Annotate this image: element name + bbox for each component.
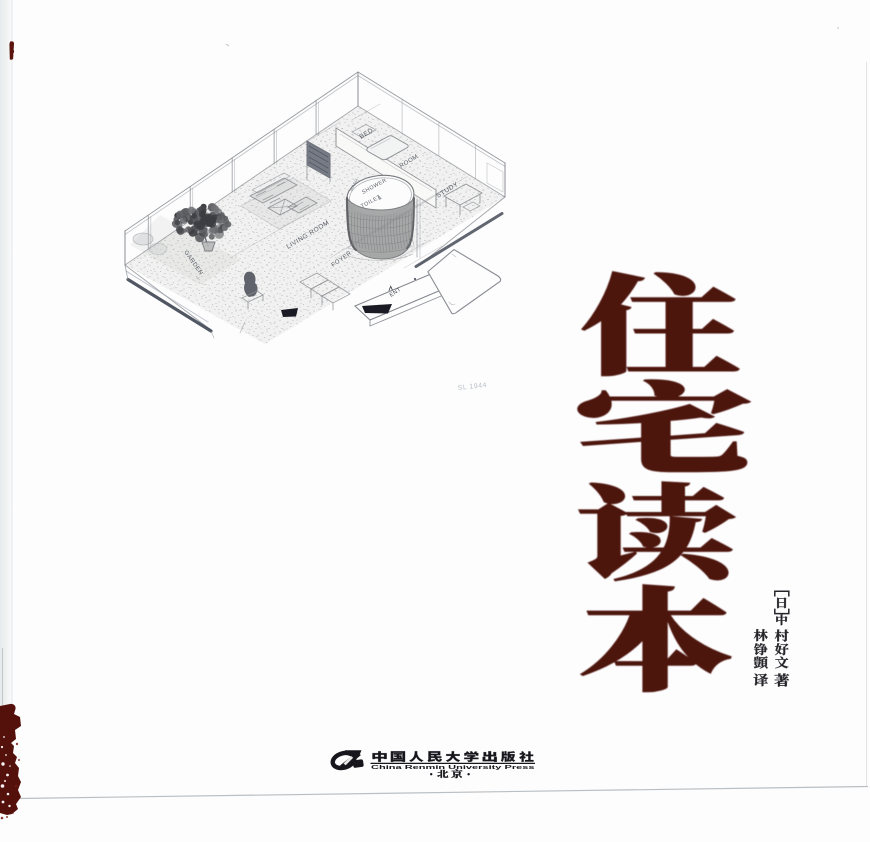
- svg-text:China Renmin University Press: China Renmin University Press: [371, 765, 535, 771]
